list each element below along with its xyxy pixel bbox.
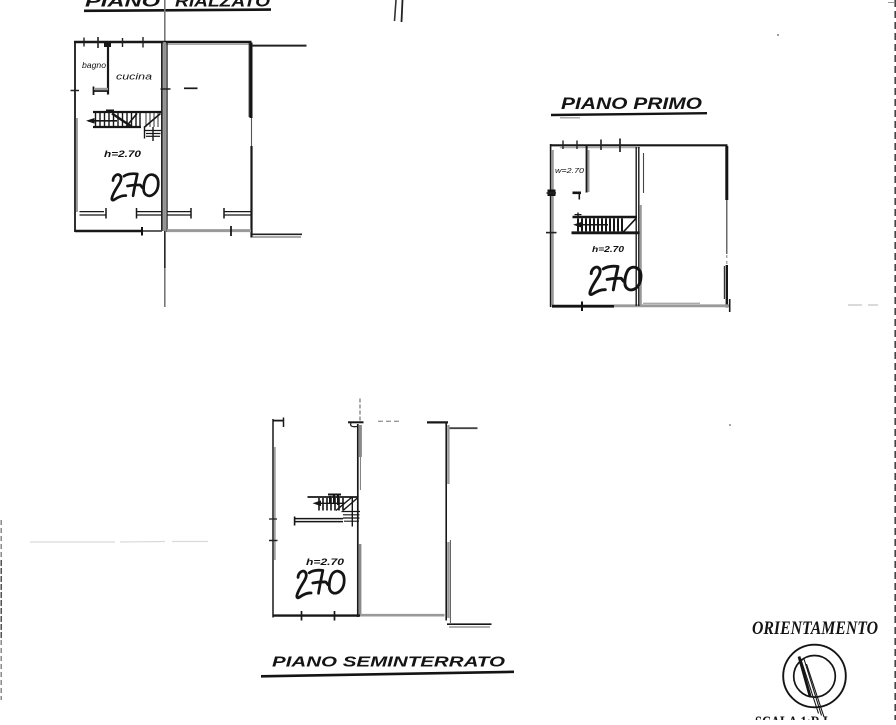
svg-text:h=2.70: h=2.70: [104, 149, 141, 159]
svg-text:h=2.70: h=2.70: [592, 244, 624, 254]
svg-text:ORIENTAMENTO: ORIENTAMENTO: [752, 618, 878, 639]
svg-text:bagno: bagno: [82, 61, 107, 70]
svg-text:PIANO PRIMO: PIANO PRIMO: [561, 95, 702, 113]
svg-text:PIANO SEMINTERRATO: PIANO SEMINTERRATO: [272, 654, 505, 671]
svg-text:PIANO: PIANO: [85, 0, 161, 11]
svg-text:w=2.70: w=2.70: [555, 166, 585, 175]
svg-text:SCALA 1:R.I.: SCALA 1:R.I.: [755, 713, 831, 721]
svg-text:cucina: cucina: [116, 72, 152, 82]
svg-text:h=2.70: h=2.70: [306, 557, 344, 567]
